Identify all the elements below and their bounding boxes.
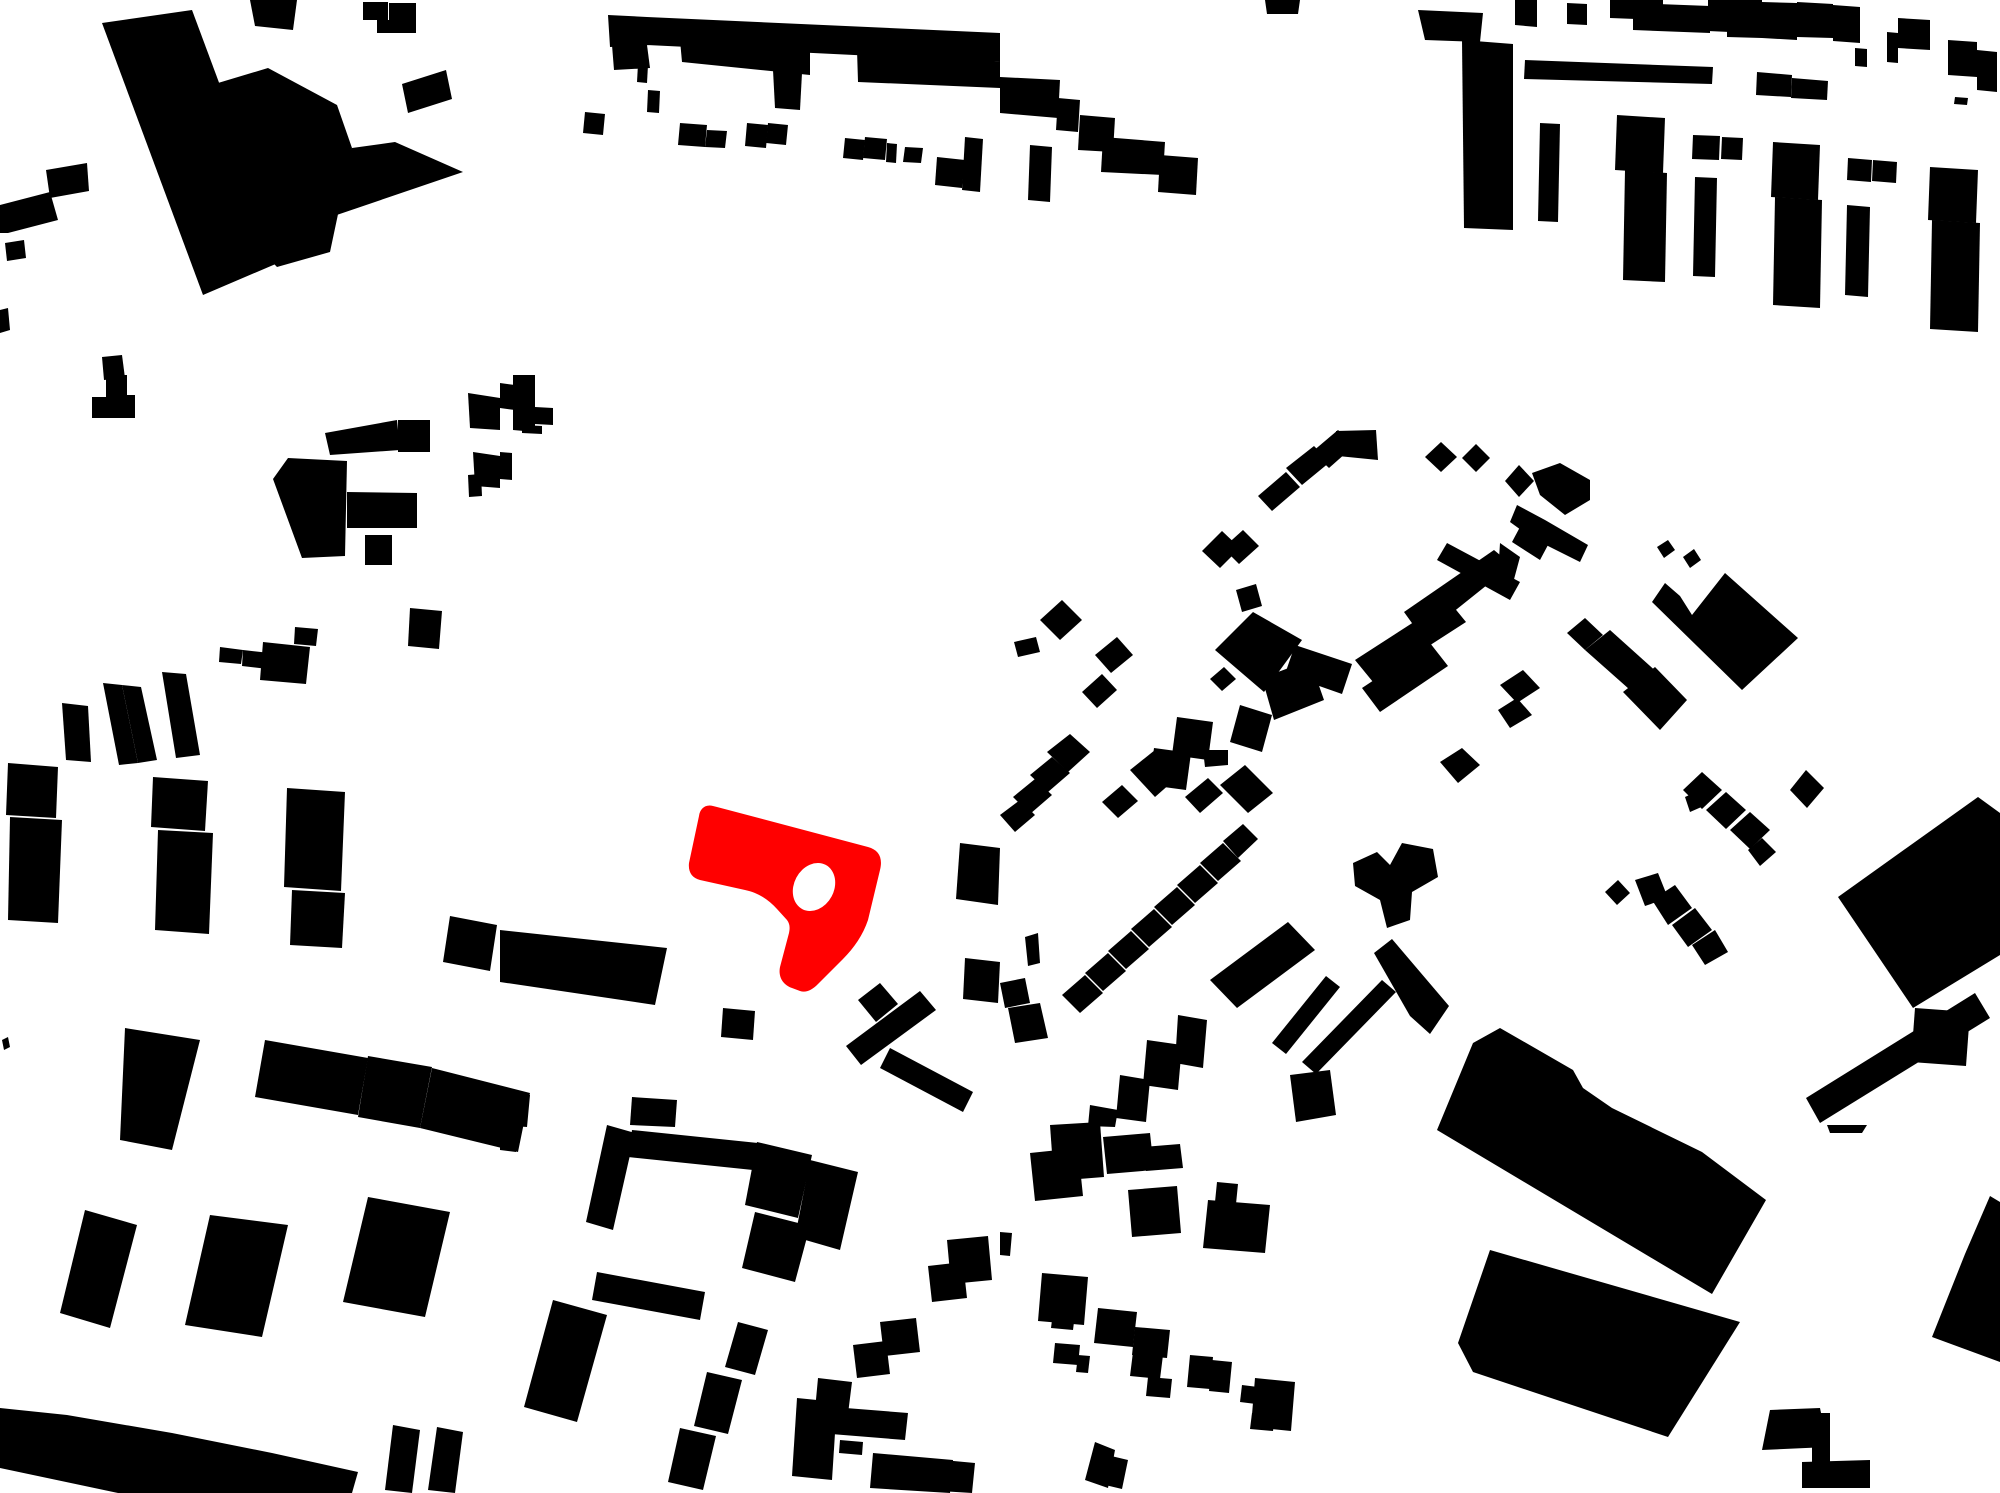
building-footprint (947, 1236, 992, 1284)
building-footprint (1692, 135, 1720, 160)
building-footprint (358, 1056, 432, 1128)
building-footprint (377, 20, 390, 33)
building-footprint (721, 1008, 755, 1040)
building-footprint (443, 916, 497, 971)
building-footprint (1290, 1070, 1336, 1122)
building-footprint (1977, 50, 1997, 92)
building-footprint (1028, 145, 1052, 202)
building-footprint (1911, 1008, 1970, 1066)
building-footprint (1930, 220, 1980, 332)
building-footprint (151, 777, 208, 831)
building-footprint (1051, 1312, 1075, 1330)
building-footprint (963, 958, 1000, 1003)
building-footprint (408, 608, 442, 649)
building-footprint (1954, 97, 1968, 105)
building-footprint (1538, 123, 1560, 222)
building-footprint (1721, 137, 1743, 160)
building-footprint (705, 130, 727, 148)
building-footprint (1948, 40, 1977, 77)
building-footprint (347, 492, 417, 528)
building-footprint (1802, 1460, 1870, 1488)
building-footprint (839, 1440, 863, 1455)
building-footprint (1567, 3, 1587, 25)
building-footprint (1887, 32, 1898, 63)
building-footprint (935, 157, 965, 188)
building-footprint (1101, 137, 1165, 175)
building-footprint (250, 0, 297, 30)
building-footprint (1515, 0, 1537, 27)
building-footprint (647, 90, 660, 113)
building-footprint (1762, 2, 1797, 40)
building-footprint (1797, 2, 1833, 38)
building-footprint (678, 123, 707, 147)
figure-ground-map (0, 0, 2000, 1493)
building-footprint (284, 788, 345, 891)
building-footprint (1053, 1343, 1080, 1365)
building-footprint (1872, 160, 1897, 183)
building-footprint (363, 2, 388, 20)
building-footprint (1203, 750, 1228, 767)
building-footprint (8, 817, 62, 923)
building-footprint (1130, 1352, 1163, 1379)
building-footprint (766, 123, 788, 145)
building-footprint (1847, 158, 1872, 182)
building-footprint (1056, 98, 1080, 132)
building-footprint (1094, 1308, 1137, 1347)
building-footprint (294, 627, 318, 646)
building-footprint (1845, 205, 1870, 297)
building-footprint (1187, 1355, 1213, 1389)
building-footprint (863, 137, 887, 160)
building-footprint (1000, 978, 1030, 1008)
building-footprint (773, 70, 802, 110)
building-footprint (219, 647, 243, 664)
building-footprint (1265, 0, 1300, 14)
map-canvas (0, 0, 2000, 1493)
building-footprint (1633, 3, 1710, 33)
building-footprint (1158, 155, 1198, 195)
building-footprint (522, 425, 542, 434)
building-footprint (1693, 177, 1717, 277)
building-footprint (1727, 0, 1762, 38)
building-footprint (886, 143, 897, 163)
building-footprint (1203, 1200, 1270, 1253)
building-footprint (1615, 115, 1665, 173)
building-footprint (1418, 10, 1483, 42)
building-footprint (962, 137, 983, 192)
building-footprint (1146, 1377, 1172, 1398)
building-footprint (792, 1398, 837, 1480)
building-footprint (1756, 72, 1792, 97)
building-footprint (1215, 1182, 1238, 1204)
building-footprint (1336, 430, 1378, 460)
building-footprint (1898, 18, 1930, 50)
building-footprint (1855, 48, 1867, 67)
building-footprint (5, 240, 26, 261)
building-footprint (843, 138, 865, 160)
building-footprint (1791, 78, 1828, 100)
building-footprint (1209, 1360, 1232, 1393)
building-footprint (1623, 170, 1667, 282)
building-footprint (1462, 40, 1513, 230)
building-footprint (155, 830, 213, 934)
building-footprint (745, 123, 768, 148)
building-footprint (500, 383, 515, 410)
building-footprint (365, 535, 392, 565)
building-footprint (1076, 1355, 1090, 1373)
building-footprint (389, 3, 416, 33)
building-footprint (1240, 1385, 1258, 1404)
building-footprint (940, 1460, 975, 1493)
building-footprint (468, 393, 500, 430)
building-footprint (62, 703, 91, 762)
building-footprint (1250, 1413, 1275, 1431)
building-footprint (880, 1318, 920, 1356)
building-footprint (500, 452, 512, 480)
building-footprint (1773, 197, 1822, 308)
building-footprint (1116, 1075, 1150, 1122)
building-footprint (513, 375, 535, 432)
building-footprint (535, 407, 553, 425)
building-footprint (468, 474, 482, 497)
building-footprint (1928, 167, 1978, 223)
building-footprint (1771, 142, 1820, 200)
building-footprint (260, 642, 310, 684)
building-footprint (1827, 1125, 1867, 1133)
building-footprint (1000, 77, 1060, 118)
building-footprint (6, 763, 58, 818)
building-footprint (630, 1097, 677, 1127)
building-footprint (1128, 1186, 1181, 1237)
building-footprint (608, 15, 650, 47)
building-footprint (398, 420, 430, 452)
building-footprint (956, 843, 1000, 905)
building-footprint (1708, 0, 1730, 32)
building-footprint (1833, 5, 1860, 43)
building-footprint (903, 147, 923, 163)
building-footprint (1050, 1122, 1104, 1181)
building-footprint (637, 64, 648, 83)
building-footprint (1143, 1144, 1183, 1171)
building-footprint (1000, 1232, 1012, 1256)
building-footprint (290, 890, 345, 948)
building-footprint (583, 112, 605, 135)
